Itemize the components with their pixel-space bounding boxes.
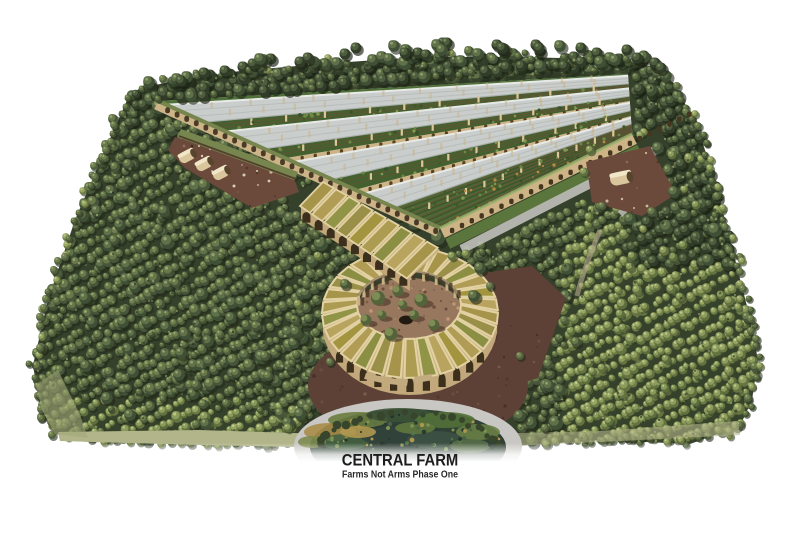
svg-text:Farms Not Arms Phase One: Farms Not Arms Phase One: [342, 470, 458, 481]
svg-text:CENTRAL FARM: CENTRAL FARM: [342, 451, 459, 470]
